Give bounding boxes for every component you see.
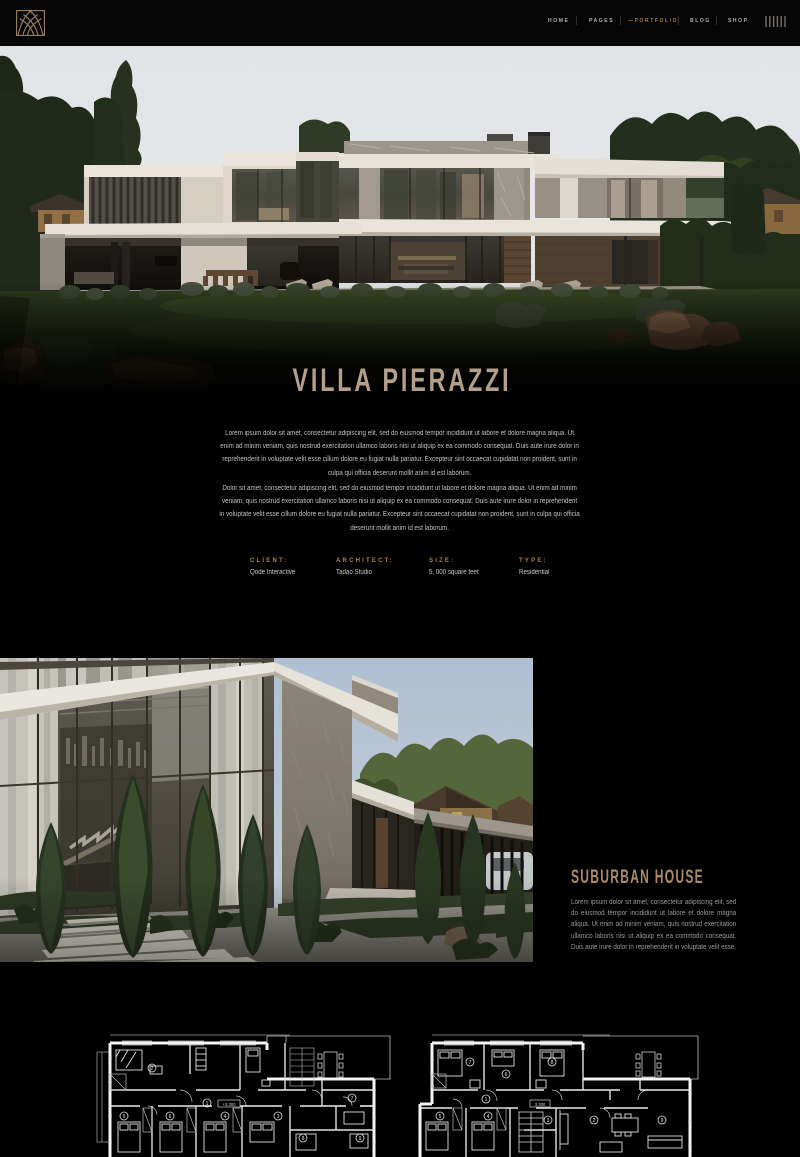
svg-text:5: 5 xyxy=(123,1114,126,1120)
svg-text:8: 8 xyxy=(302,1136,305,1142)
svg-text:6: 6 xyxy=(505,1072,508,1078)
svg-text:1: 1 xyxy=(485,1097,488,1103)
svg-text:3: 3 xyxy=(277,1114,280,1120)
svg-text:5: 5 xyxy=(439,1114,442,1120)
svg-text:3: 3 xyxy=(547,1118,550,1124)
svg-text:6: 6 xyxy=(169,1114,172,1120)
svg-text:VILLA PIERAZZI: VILLA PIERAZZI xyxy=(293,362,512,398)
svg-text:SUBURBAN HOUSE: SUBURBAN HOUSE xyxy=(571,867,704,888)
svg-text:+3.300: +3.300 xyxy=(223,1102,237,1107)
svg-text:9: 9 xyxy=(359,1136,362,1142)
svg-text:4: 4 xyxy=(487,1114,490,1120)
svg-text:8: 8 xyxy=(551,1060,554,1066)
svg-text:7: 7 xyxy=(351,1096,354,1102)
svg-text:3.300: 3.300 xyxy=(535,1102,546,1107)
svg-text:9: 9 xyxy=(661,1118,664,1124)
svg-text:4: 4 xyxy=(224,1114,227,1120)
svg-text:2: 2 xyxy=(593,1118,596,1124)
svg-text:1: 1 xyxy=(206,1101,209,1107)
svg-text:2: 2 xyxy=(151,1066,154,1072)
svg-text:7: 7 xyxy=(469,1060,472,1066)
